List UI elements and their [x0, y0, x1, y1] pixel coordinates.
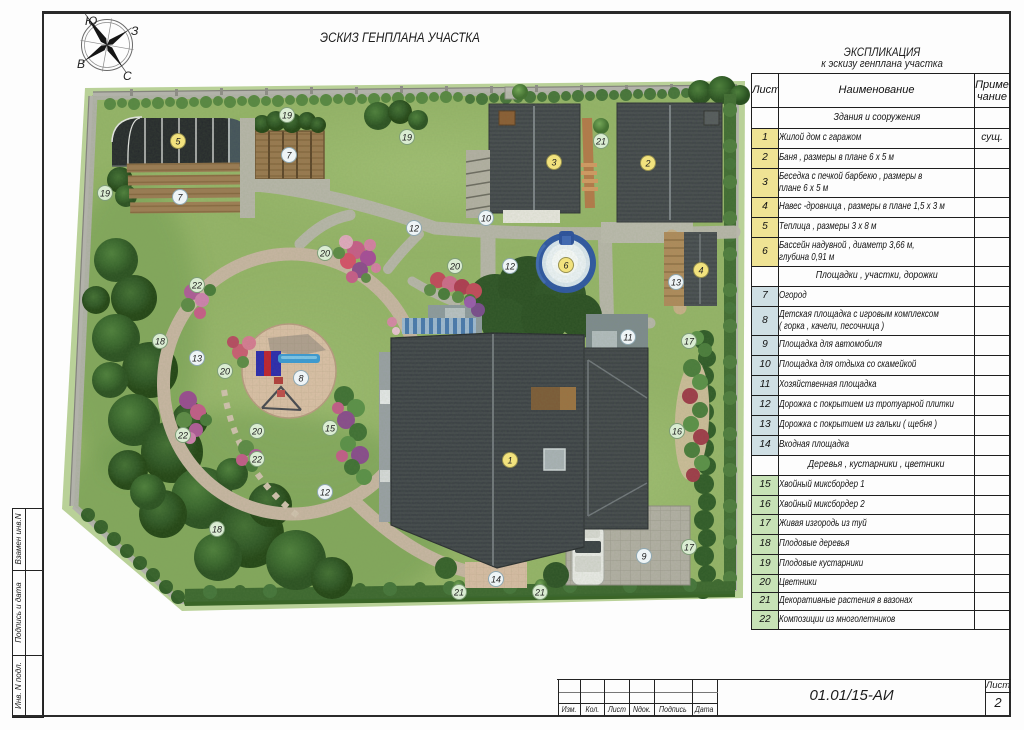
svg-text:19: 19	[282, 111, 292, 121]
svg-text:11: 11	[623, 333, 632, 343]
svg-text:2: 2	[644, 159, 650, 169]
svg-text:17: 17	[684, 543, 695, 553]
svg-text:13: 13	[671, 278, 681, 288]
svg-text:18: 18	[212, 525, 222, 535]
svg-text:12: 12	[409, 224, 419, 234]
svg-text:21: 21	[595, 137, 606, 147]
svg-text:8: 8	[298, 374, 303, 384]
svg-text:15: 15	[325, 424, 336, 434]
svg-text:20: 20	[319, 249, 330, 259]
svg-text:16: 16	[672, 427, 682, 437]
svg-text:12: 12	[505, 262, 515, 272]
svg-text:21: 21	[534, 588, 545, 598]
svg-text:14: 14	[491, 575, 501, 585]
svg-text:18: 18	[155, 337, 165, 347]
svg-text:С: С	[123, 69, 132, 83]
svg-text:6: 6	[563, 261, 568, 271]
svg-text:13: 13	[192, 354, 202, 364]
svg-text:1: 1	[507, 456, 512, 466]
svg-text:9: 9	[641, 552, 646, 562]
svg-text:19: 19	[402, 133, 412, 143]
svg-text:22: 22	[191, 281, 202, 291]
svg-text:17: 17	[684, 337, 695, 347]
svg-text:20: 20	[219, 367, 230, 377]
svg-text:4: 4	[698, 266, 703, 276]
svg-text:20: 20	[251, 427, 262, 437]
svg-text:В: В	[77, 57, 85, 71]
svg-text:22: 22	[177, 431, 188, 441]
svg-text:20: 20	[449, 262, 460, 272]
svg-text:21: 21	[453, 588, 464, 598]
svg-text:22: 22	[251, 455, 262, 465]
svg-text:19: 19	[100, 189, 110, 199]
svg-text:12: 12	[320, 488, 330, 498]
svg-text:Ю: Ю	[85, 14, 97, 28]
svg-text:10: 10	[481, 214, 491, 224]
svg-text:3: 3	[551, 158, 556, 168]
svg-text:З: З	[131, 24, 139, 38]
